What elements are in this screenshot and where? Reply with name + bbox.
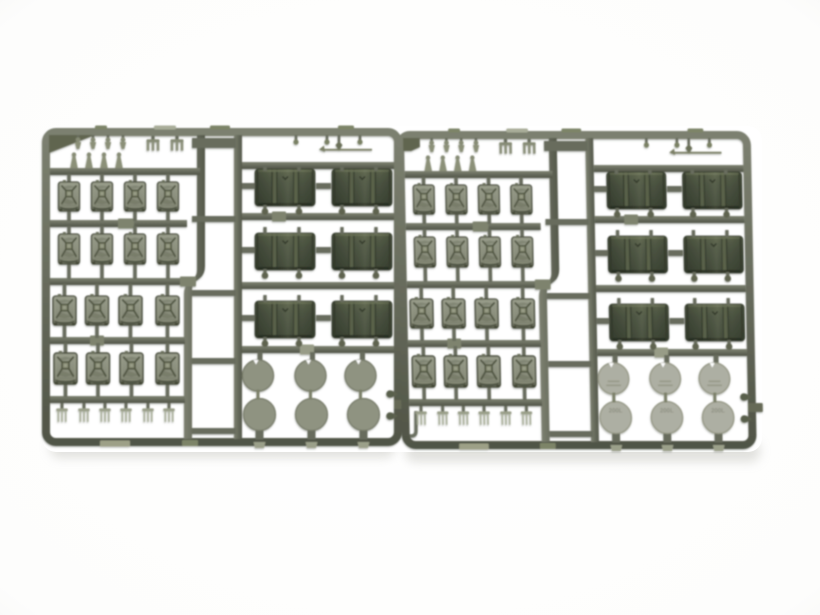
svg-text:200L: 200L xyxy=(609,407,623,414)
svg-text:200L: 200L xyxy=(711,407,725,414)
svg-text:200L: 200L xyxy=(660,407,674,414)
